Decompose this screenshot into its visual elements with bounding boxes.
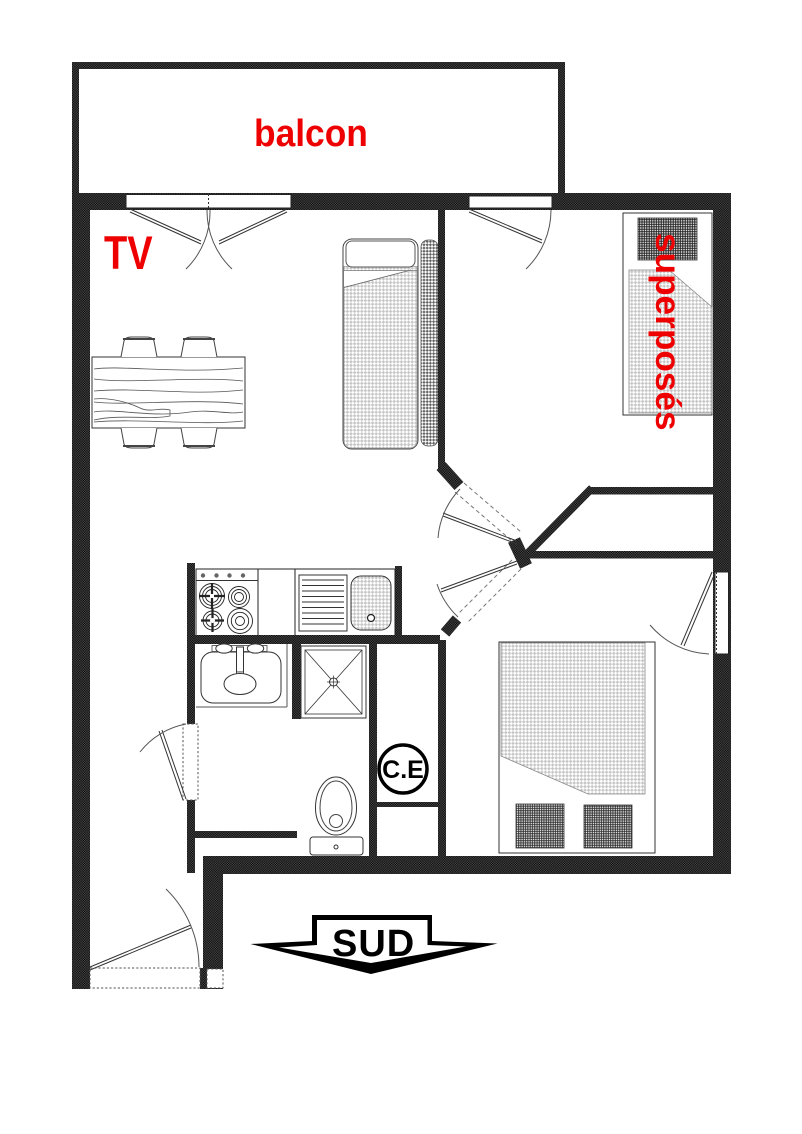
svg-text:C.E: C.E <box>382 756 424 784</box>
svg-text:SUD: SUD <box>332 923 415 965</box>
svg-text:superposés: superposés <box>648 233 687 431</box>
svg-text:balcon: balcon <box>254 112 368 154</box>
svg-text:TV: TV <box>104 227 153 280</box>
